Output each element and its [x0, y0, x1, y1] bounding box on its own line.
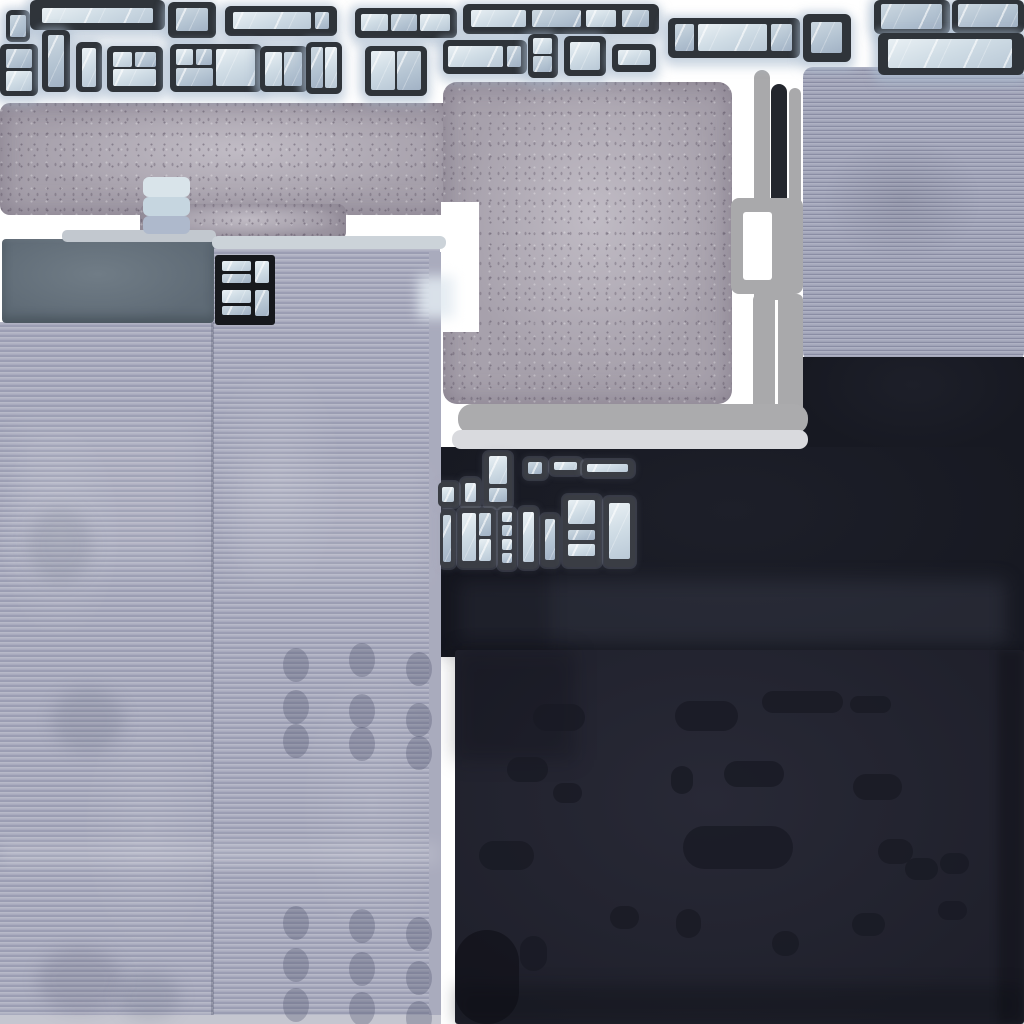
roof-spot-blob [610, 906, 639, 929]
facade-window [42, 30, 70, 92]
facade-window [260, 46, 308, 92]
glass-pane [554, 462, 577, 470]
glass-pane [265, 52, 282, 86]
glass-pane [391, 14, 418, 31]
roof-spot-blob [676, 909, 701, 938]
siding-seam [211, 322, 214, 1015]
glass-pane [587, 464, 629, 472]
glass-pane [568, 544, 595, 556]
glass-pane [465, 483, 476, 502]
glass-pane [42, 8, 153, 23]
glass-pane [196, 49, 213, 65]
glass-pane [325, 47, 337, 88]
facade-window [306, 42, 342, 94]
corrugated-panel-right [803, 67, 1024, 362]
glass-pane [216, 49, 255, 86]
roof-spot-blob [675, 701, 738, 731]
concrete-wall-top [0, 103, 457, 215]
glass-pane [176, 8, 209, 30]
glass-pane [698, 24, 767, 51]
siding-dent-oval [28, 508, 92, 582]
facade-window [612, 44, 656, 72]
small-window [524, 458, 547, 479]
small-window [484, 452, 512, 508]
siding-bottom-strip [0, 1015, 441, 1024]
glass-block-bottom [143, 216, 190, 234]
small-window [604, 497, 635, 567]
facade-window [443, 40, 527, 74]
glass-pane [545, 519, 555, 559]
glass-pane [6, 49, 33, 68]
glass-pane [420, 14, 450, 31]
glass-pane [222, 290, 251, 303]
facade-window [463, 4, 659, 34]
facade-window [170, 44, 262, 92]
glass-pane [222, 274, 251, 283]
glass-pane [586, 10, 615, 27]
roof-spot-blob [553, 783, 582, 803]
facade-window [168, 2, 216, 38]
glass-pane [176, 49, 193, 65]
dark-band-right [803, 357, 1024, 450]
siding-mid-right-margin [429, 252, 441, 1015]
siding-dent-oval [406, 917, 432, 951]
roof-spot-blob [671, 766, 693, 794]
facade-window [355, 8, 457, 38]
small-window [498, 508, 516, 570]
glass-pane [881, 4, 943, 28]
small-window [519, 507, 538, 569]
siding-column-mid [213, 244, 440, 1024]
small-window [563, 495, 601, 567]
trim-dark-pill [771, 84, 787, 216]
glass-pane [523, 512, 534, 562]
glass-pane [568, 530, 595, 541]
glass-pane [135, 52, 156, 67]
glass-pane [48, 35, 65, 87]
glass-pane [222, 306, 251, 315]
glass-pane [533, 38, 552, 53]
facade-window [952, 0, 1024, 33]
roof-spot-blob [905, 858, 938, 880]
glass-block-top [143, 177, 190, 197]
glass-pane [6, 71, 33, 91]
roof-spot-blob [533, 704, 585, 731]
facade-window [803, 14, 851, 62]
trim-block-low [753, 294, 803, 416]
siding-dent-oval [349, 952, 375, 986]
glass-pane [675, 24, 695, 51]
siding-window [215, 255, 275, 325]
glass-pane [113, 69, 156, 86]
glass-pane [532, 10, 581, 27]
glass-pane [533, 56, 552, 72]
glass-pane [888, 39, 1012, 68]
glass-pane [462, 513, 476, 561]
siding-dent-oval [349, 694, 375, 728]
roof-spot-blob [683, 826, 793, 869]
siding-dent-oval [283, 906, 309, 940]
glass-pane [443, 515, 451, 563]
siding-dent-oval [118, 972, 180, 1020]
glass-pane [397, 51, 421, 90]
small-window [438, 482, 459, 507]
slab-notch [441, 202, 479, 332]
small-window [458, 508, 496, 568]
roof-spot-blob [479, 841, 534, 870]
concrete-slab [443, 82, 732, 404]
glass-pane [502, 553, 512, 564]
glass-pane [471, 10, 526, 27]
roof-spot-blob [507, 757, 548, 782]
glass-block-mid [143, 197, 190, 216]
siding-dent-oval [349, 727, 375, 761]
small-window [541, 514, 559, 567]
siding-dent-oval [283, 988, 309, 1022]
glass-pane [222, 261, 251, 272]
glass-pane [502, 539, 512, 550]
facade-window [225, 6, 337, 36]
small-window [440, 510, 455, 568]
glass-pane [255, 261, 269, 283]
trim-ring-hole [743, 212, 772, 280]
glass-pane [479, 539, 492, 561]
trim-bottom-light [452, 430, 808, 449]
glass-pane [284, 52, 301, 86]
glass-pane [568, 500, 595, 524]
small-window [582, 460, 634, 477]
glass-pane [315, 12, 330, 29]
facade-window [6, 10, 30, 42]
roof-spot-blob [455, 930, 519, 1024]
siding-dent-oval [38, 948, 122, 1012]
facade-window [365, 46, 427, 96]
siding-dent-oval [52, 688, 124, 752]
glass-pane [10, 15, 25, 37]
roof-spot-blob [850, 696, 891, 713]
glass-pane [176, 68, 213, 86]
roof-spot-blob [940, 853, 969, 874]
roof-spot-blob [938, 901, 967, 920]
roof-spot-blob [762, 691, 843, 713]
glass-pane [958, 4, 1017, 27]
small-window [550, 458, 582, 475]
facade-window [874, 0, 950, 34]
glass-pane [233, 12, 311, 29]
glass-pane [507, 46, 521, 67]
siding-dent-oval [406, 703, 432, 737]
trim-line [775, 300, 778, 408]
glass-pane [771, 24, 792, 51]
parapet-slate [2, 239, 214, 323]
facade-window [30, 0, 165, 30]
facade-window [528, 34, 558, 78]
glass-pane [371, 51, 395, 90]
roof-spot-blob [772, 931, 799, 956]
flashing-bar [212, 236, 446, 249]
roof-spot-blob [878, 839, 913, 864]
glass-pane [570, 42, 599, 70]
siding-dent-oval [406, 652, 432, 686]
roof-spot-blob [852, 913, 885, 936]
texture-atlas-canvas [0, 0, 1024, 1024]
glass-pane [609, 503, 630, 559]
glass-pane [255, 290, 269, 316]
glass-pane [311, 47, 323, 88]
facade-window [668, 18, 800, 58]
glass-pane [442, 487, 454, 502]
siding-dent-oval [283, 690, 309, 724]
glass-pane [489, 456, 507, 484]
glass-pane [448, 46, 503, 67]
glass-pane [502, 512, 512, 523]
glass-pane [361, 14, 388, 31]
glass-pane [113, 52, 132, 67]
glass-pane [502, 525, 512, 536]
siding-dent-oval [349, 992, 375, 1024]
siding-dent-oval [349, 643, 375, 677]
parapet-cap [62, 230, 216, 242]
siding-dent-oval [349, 909, 375, 943]
facade-window [107, 46, 163, 92]
facade-window [0, 44, 38, 96]
glass-pane [622, 10, 649, 27]
glass-pane [618, 50, 650, 65]
glass-pane [528, 462, 542, 474]
glass-pane [82, 48, 97, 87]
glass-pane [811, 22, 842, 53]
siding-dent-oval [283, 648, 309, 682]
glass-pane [479, 513, 492, 535]
siding-column-left [0, 322, 213, 1024]
roof-spot-blob [853, 774, 902, 800]
facade-window [564, 36, 606, 76]
roof-spot-blob [724, 761, 784, 787]
small-window [461, 478, 480, 508]
siding-dent-oval [283, 948, 309, 982]
roof-spot-blob [520, 936, 547, 971]
facade-window [878, 33, 1024, 75]
glass-pane [489, 488, 507, 503]
facade-window [76, 42, 102, 92]
siding-dent-oval [406, 736, 432, 770]
siding-dent-oval [406, 961, 432, 995]
siding-dent-oval [283, 724, 309, 758]
